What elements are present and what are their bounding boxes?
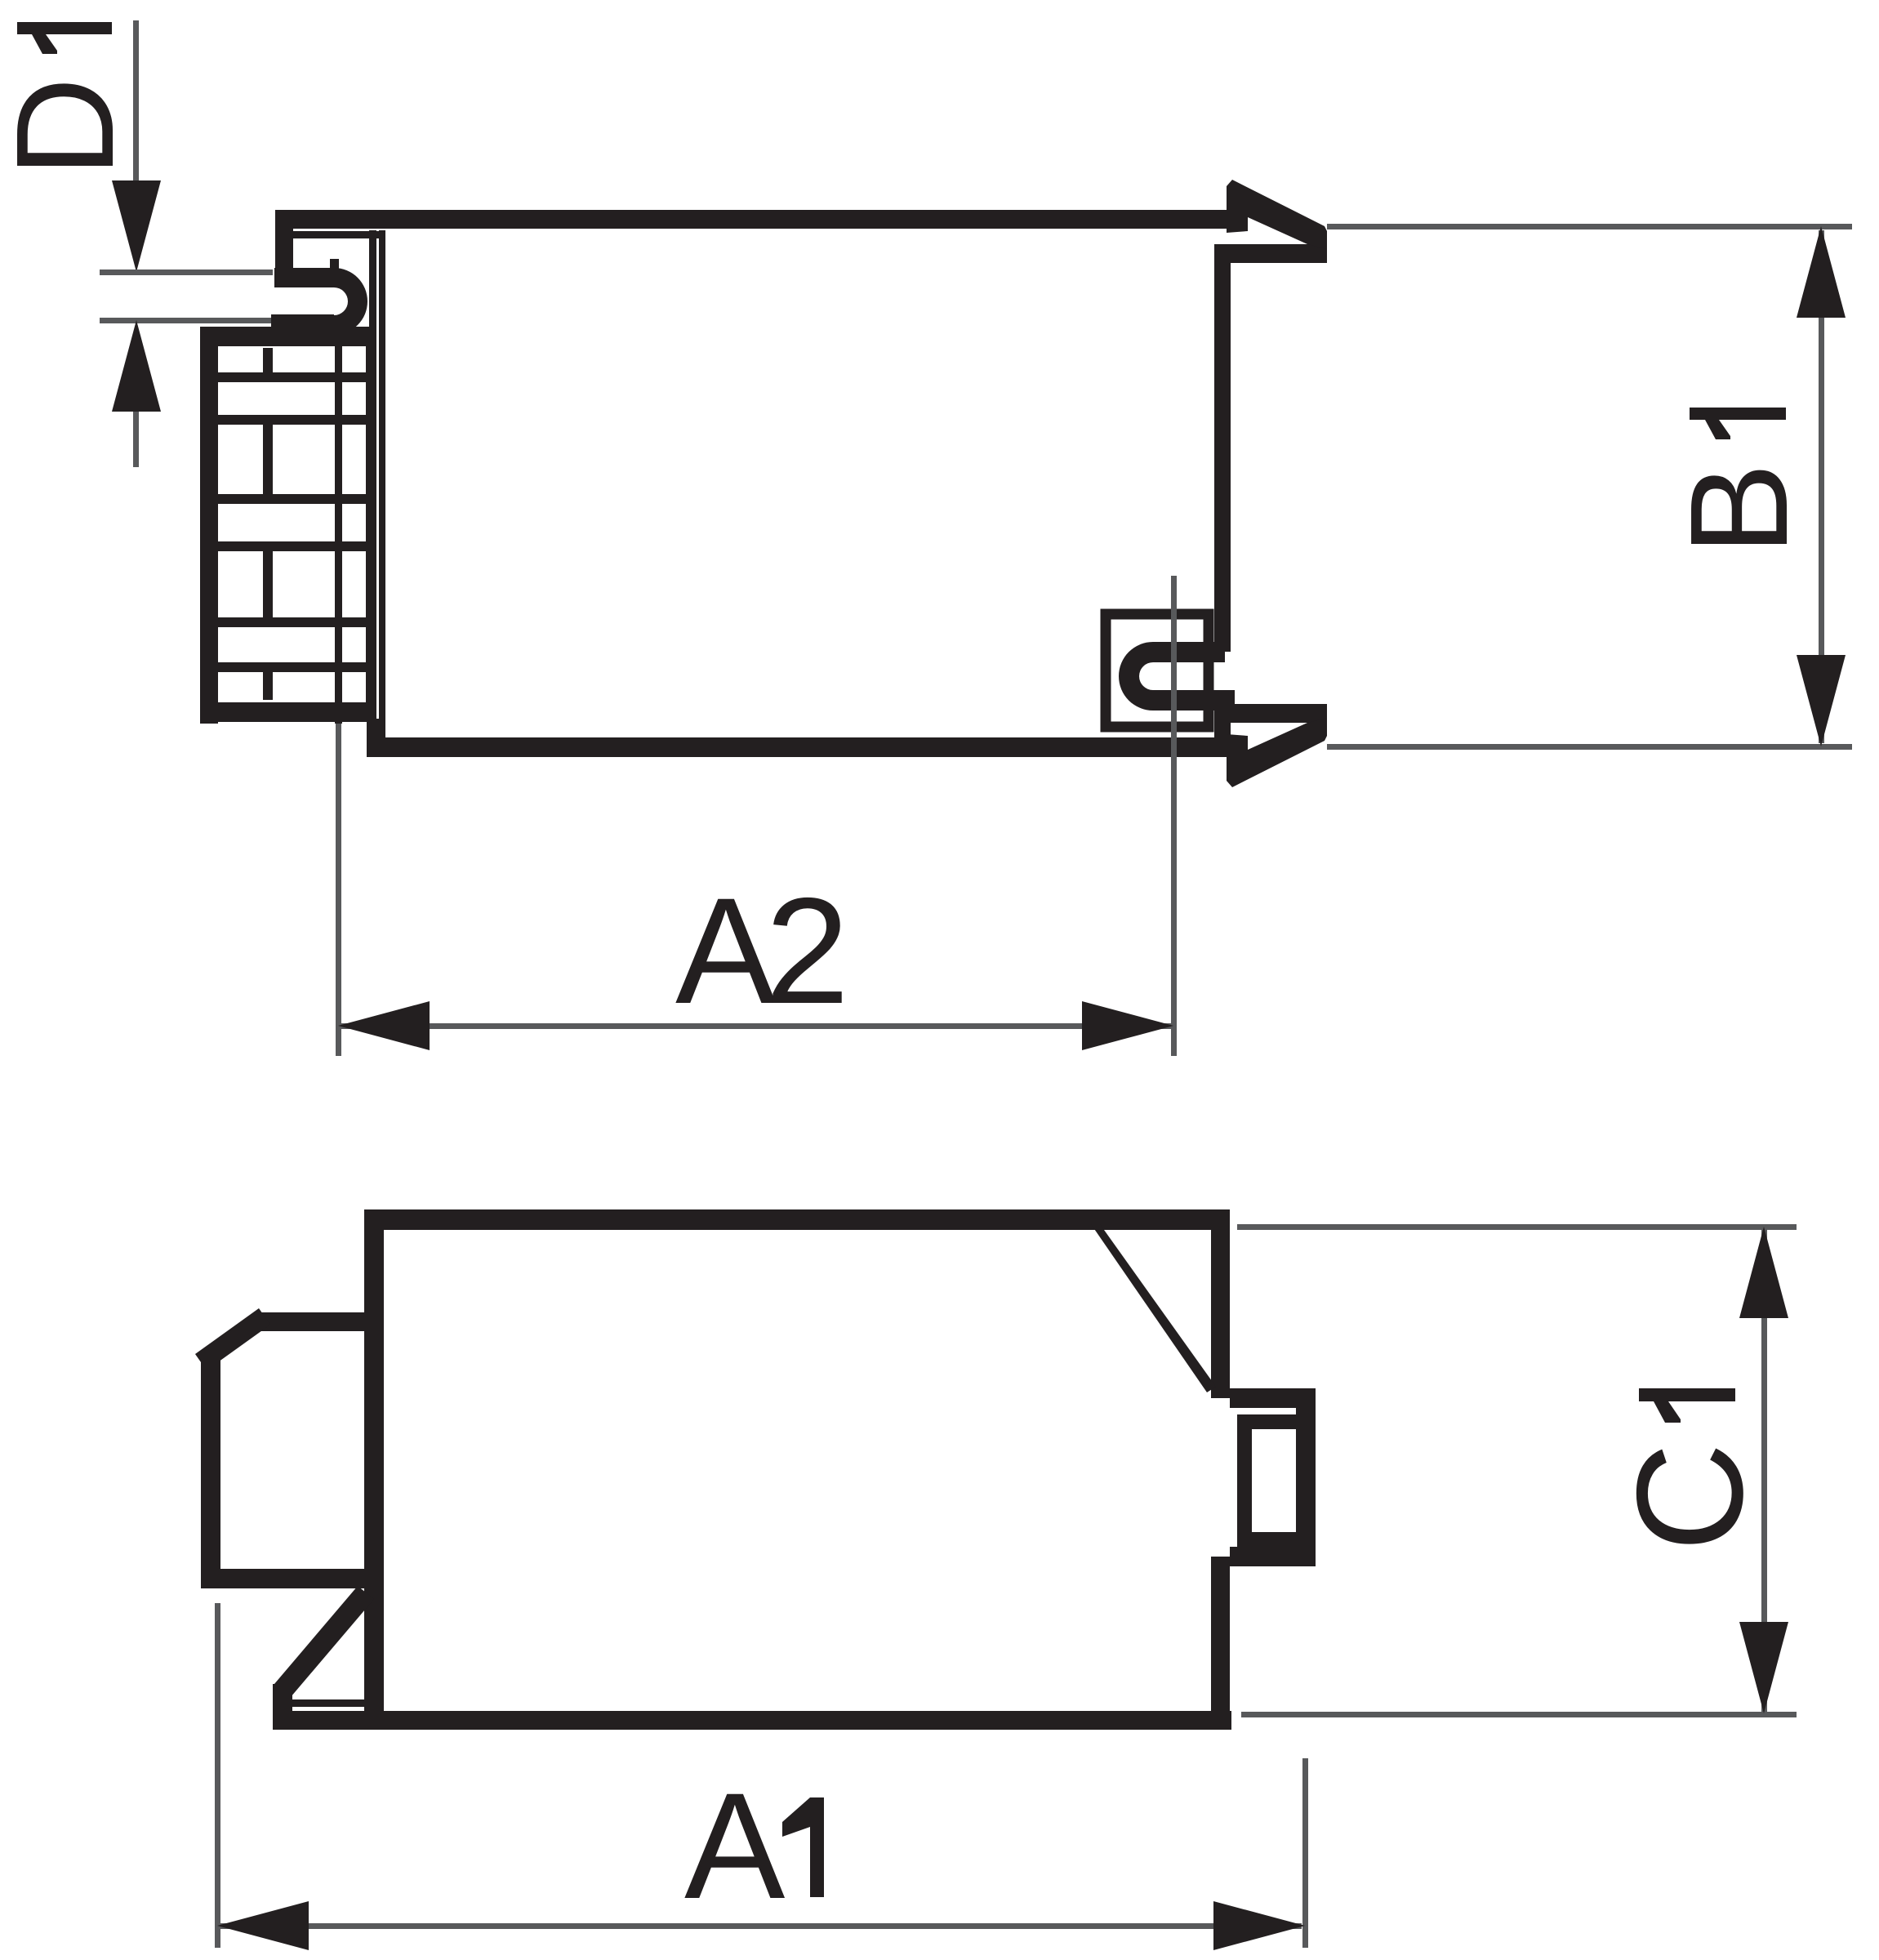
svg-text:A: A — [684, 1762, 786, 1931]
svg-text:B: B — [1662, 463, 1817, 555]
svg-text:A2: A2 — [675, 867, 849, 1036]
svg-text:C: C — [1606, 1442, 1774, 1552]
svg-text:D: D — [0, 77, 143, 177]
